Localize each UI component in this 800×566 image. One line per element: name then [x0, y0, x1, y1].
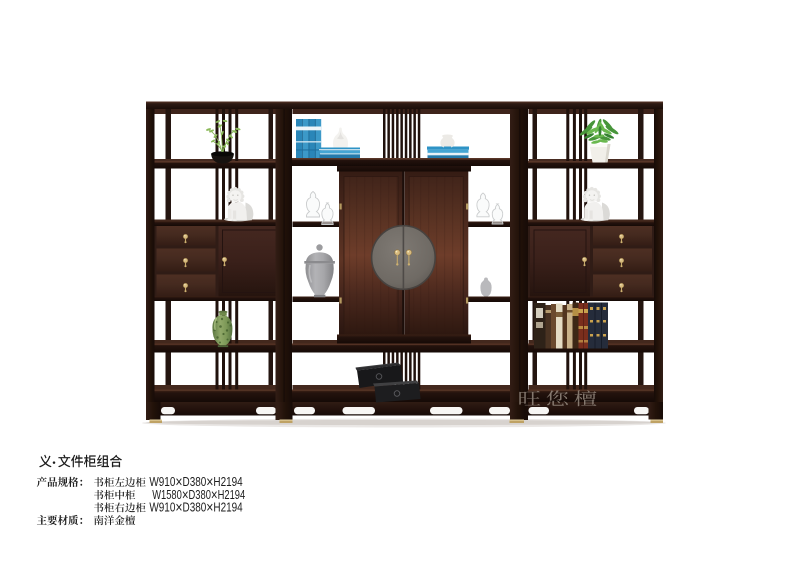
svg-text:W910×D380×H2194: W910×D380×H2194 [149, 499, 243, 517]
